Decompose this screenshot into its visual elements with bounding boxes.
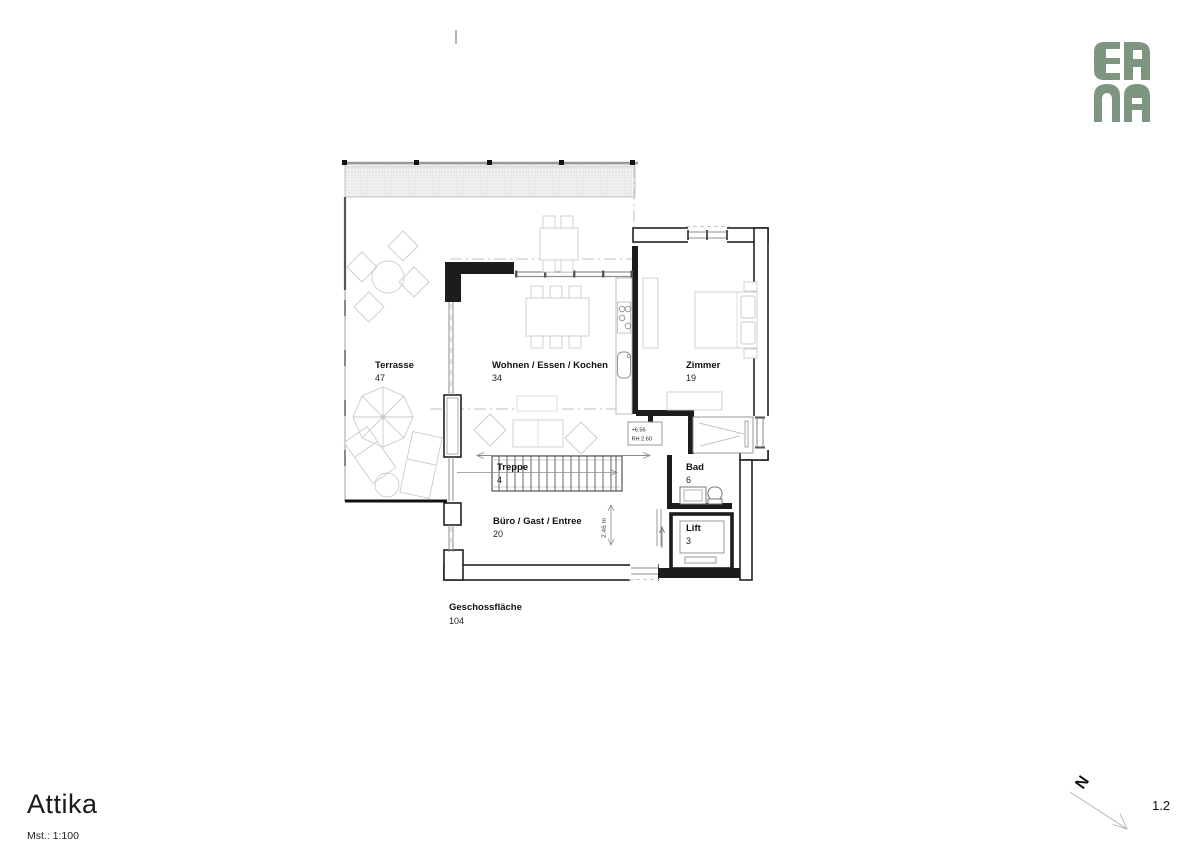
parasol-icon [353, 387, 413, 447]
room-label-treppe: Treppe [497, 462, 528, 473]
dimension-stair-width: 2.46 m [601, 505, 614, 545]
room-area-zimmer: 19 [686, 373, 696, 383]
clear-height-value: RH 2.60 [632, 437, 653, 443]
stair [457, 453, 650, 492]
plan-scale: Mst.: 1:100 [27, 830, 79, 842]
floor-plan-canvas: 2.46 m +6.56 RH 2.60 Terrasse 47 Wohnen … [0, 0, 1200, 855]
area-geschossflaeche: 104 [449, 616, 464, 626]
lounger-icon [400, 432, 442, 499]
room-label-lift: Lift [686, 523, 702, 534]
drawing-sheet: 2.46 m +6.56 RH 2.60 Terrasse 47 Wohnen … [0, 0, 1200, 855]
toilet-icon [708, 487, 722, 504]
shower-icon [693, 417, 753, 453]
furniture-zimmer [643, 278, 757, 410]
elevation-value: +6.56 [632, 428, 646, 434]
elevation-note: +6.56 RH 2.60 [628, 422, 662, 445]
lounger-icon [344, 426, 396, 483]
round-table-icon [372, 261, 404, 293]
room-label-terrasse: Terrasse [375, 360, 414, 371]
dining-table-icon [526, 298, 589, 336]
room-label-buero: Büro / Gast / Entree [493, 516, 582, 527]
room-area-wohnen: 34 [492, 373, 502, 383]
furniture-terrace-top [540, 216, 578, 272]
side-table-icon [375, 473, 399, 497]
entry-arrow [660, 527, 665, 548]
room-area-buero: 20 [493, 529, 503, 539]
wardrobe-icon [643, 278, 658, 348]
room-label-bad: Bad [686, 462, 704, 473]
label-geschossflaeche: Geschossfläche [449, 602, 522, 613]
dimension-label: 2.46 m [601, 518, 608, 538]
room-area-lift: 3 [686, 536, 691, 546]
north-arrow: N [1070, 773, 1127, 829]
closet-icon [667, 392, 722, 410]
room-label-wohnen: Wohnen / Essen / Kochen [492, 360, 608, 371]
room-area-bad: 6 [686, 475, 691, 485]
armchair-icon [565, 422, 597, 454]
kitchen-counter [616, 278, 632, 414]
terrace-roof-band [342, 160, 638, 197]
north-label: N [1072, 773, 1093, 792]
logo [1094, 42, 1150, 122]
room-area-treppe: 4 [497, 475, 502, 485]
title-block: Attika Mst.: 1:100 1.2 [27, 789, 1170, 842]
room-area-terrasse: 47 [375, 373, 385, 383]
plan-title: Attika [27, 789, 98, 819]
sheet-number: 1.2 [1152, 798, 1170, 813]
outdoor-table-icon [540, 228, 578, 260]
room-label-zimmer: Zimmer [686, 360, 721, 371]
armchair-icon [474, 414, 506, 446]
